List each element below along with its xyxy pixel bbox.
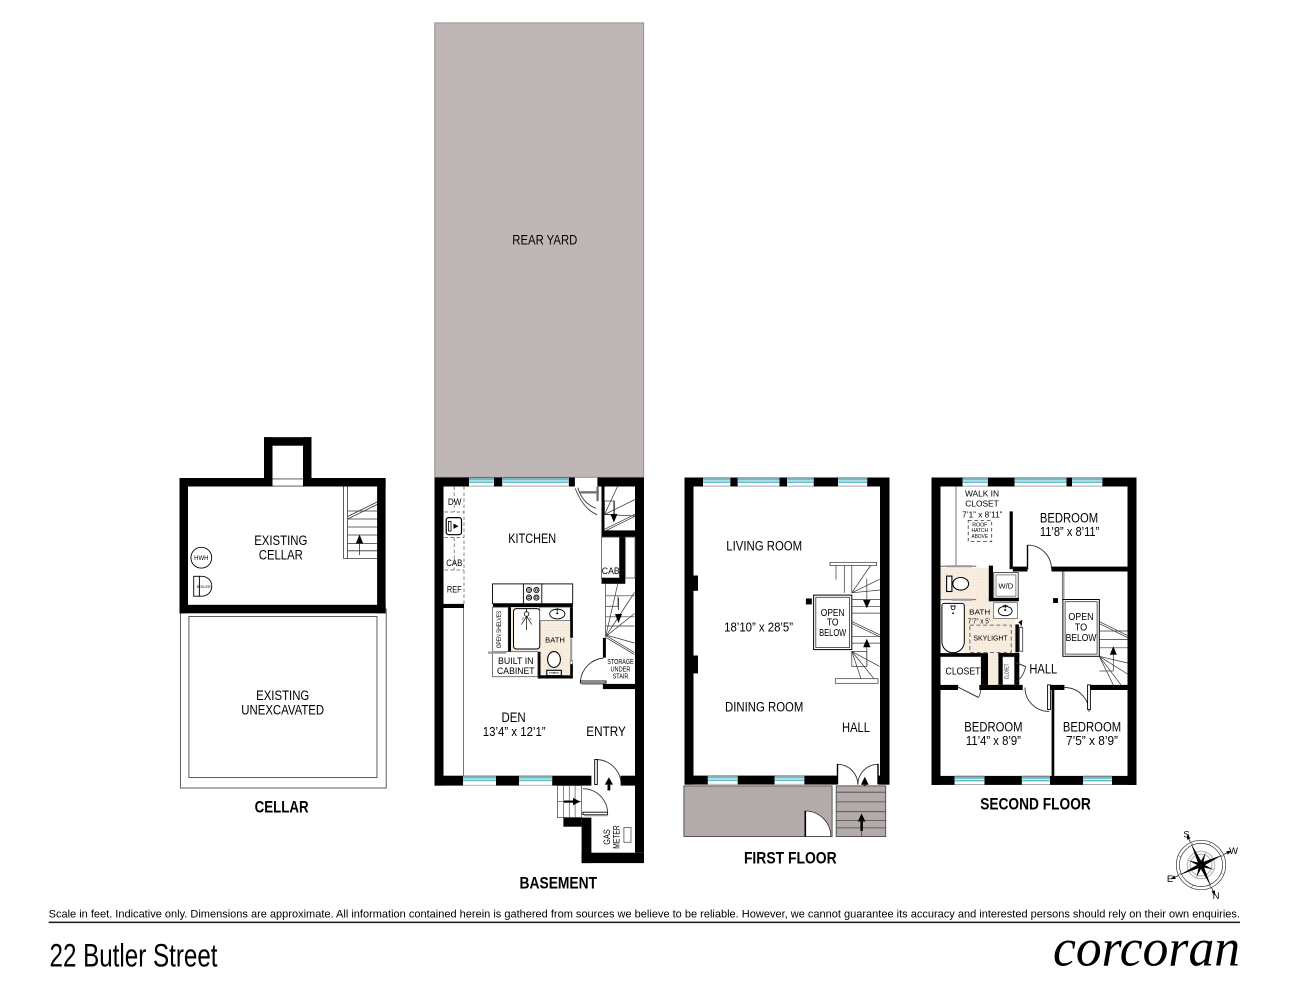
svg-text:DW: DW [448,497,462,507]
svg-text:SECOND FLOOR: SECOND FLOOR [980,795,1091,813]
svg-text:CAB: CAB [446,558,462,568]
svg-text:FIRST FLOOR: FIRST FLOOR [744,849,837,867]
svg-text:REF: REF [447,585,462,595]
svg-text:DINING ROOM: DINING ROOM [725,700,803,715]
svg-text:BOILER: BOILER [197,585,211,589]
svg-text:KITCHEN: KITCHEN [508,531,556,546]
svg-text:UNDER: UNDER [611,666,631,673]
svg-text:REAR YARD: REAR YARD [512,232,577,247]
svg-text:CLOSET: CLOSET [1005,663,1011,679]
svg-text:GAS: GAS [602,829,612,845]
svg-text:E: E [1167,874,1173,885]
svg-text:HATCH: HATCH [972,528,989,534]
svg-text:CAB: CAB [602,566,620,576]
svg-text:METER: METER [612,825,622,848]
svg-text:7’7” x 5’: 7’7” x 5’ [968,616,991,625]
svg-text:CLOSET: CLOSET [946,667,982,678]
svg-text:OPEN: OPEN [1068,612,1093,623]
svg-text:ENTRY: ENTRY [586,724,626,739]
svg-text:HALL: HALL [842,720,870,735]
svg-text:13’4” x 12’1”: 13’4” x 12’1” [483,724,546,739]
svg-text:ABOVE: ABOVE [972,534,989,540]
svg-text:UNEXCAVATED: UNEXCAVATED [241,702,324,717]
svg-text:W: W [1229,846,1238,857]
svg-text:STAIR: STAIR [613,674,629,681]
svg-text:7’5” x 8’9”: 7’5” x 8’9” [1066,733,1118,748]
svg-text:BELOW: BELOW [819,628,846,639]
svg-text:CELLAR: CELLAR [255,799,309,817]
svg-text:DEN: DEN [502,710,526,725]
svg-text:W/D: W/D [998,582,1013,591]
svg-text:BATH: BATH [545,635,565,644]
svg-text:22 Butler Street: 22 Butler Street [50,937,218,974]
svg-text:TO: TO [1075,623,1087,634]
svg-text:corcoran: corcoran [1053,920,1240,978]
svg-text:BELOW: BELOW [1066,633,1097,644]
svg-text:CABINET: CABINET [497,666,535,676]
svg-text:BASEMENT: BASEMENT [520,875,598,893]
svg-text:LIVING ROOM: LIVING ROOM [726,538,802,553]
svg-text:STORAGE: STORAGE [607,659,634,666]
svg-text:11’8” x 8’11”: 11’8” x 8’11” [1040,524,1099,539]
svg-text:7’1” x 8’11”: 7’1” x 8’11” [962,509,1003,519]
svg-text:BATH: BATH [969,607,990,616]
svg-text:CELLAR: CELLAR [259,547,303,562]
svg-text:CLOSET: CLOSET [965,499,999,509]
svg-text:11’4” x 8’9”: 11’4” x 8’9” [966,733,1021,748]
svg-text:WALK IN: WALK IN [965,488,999,498]
svg-text:HALL: HALL [1029,662,1057,677]
svg-text:HWH: HWH [194,556,208,562]
svg-text:S: S [1183,830,1189,841]
svg-text:18’10” x 28’5”: 18’10” x 28’5” [724,620,793,635]
svg-text:EXISTING: EXISTING [256,688,309,703]
svg-text:EXISTING: EXISTING [254,533,307,548]
svg-text:SKYLIGHT: SKYLIGHT [973,633,1008,642]
svg-text:BUILT IN: BUILT IN [498,656,534,666]
svg-text:N: N [1213,891,1220,902]
svg-text:OPEN SHELVES: OPEN SHELVES [497,611,503,649]
